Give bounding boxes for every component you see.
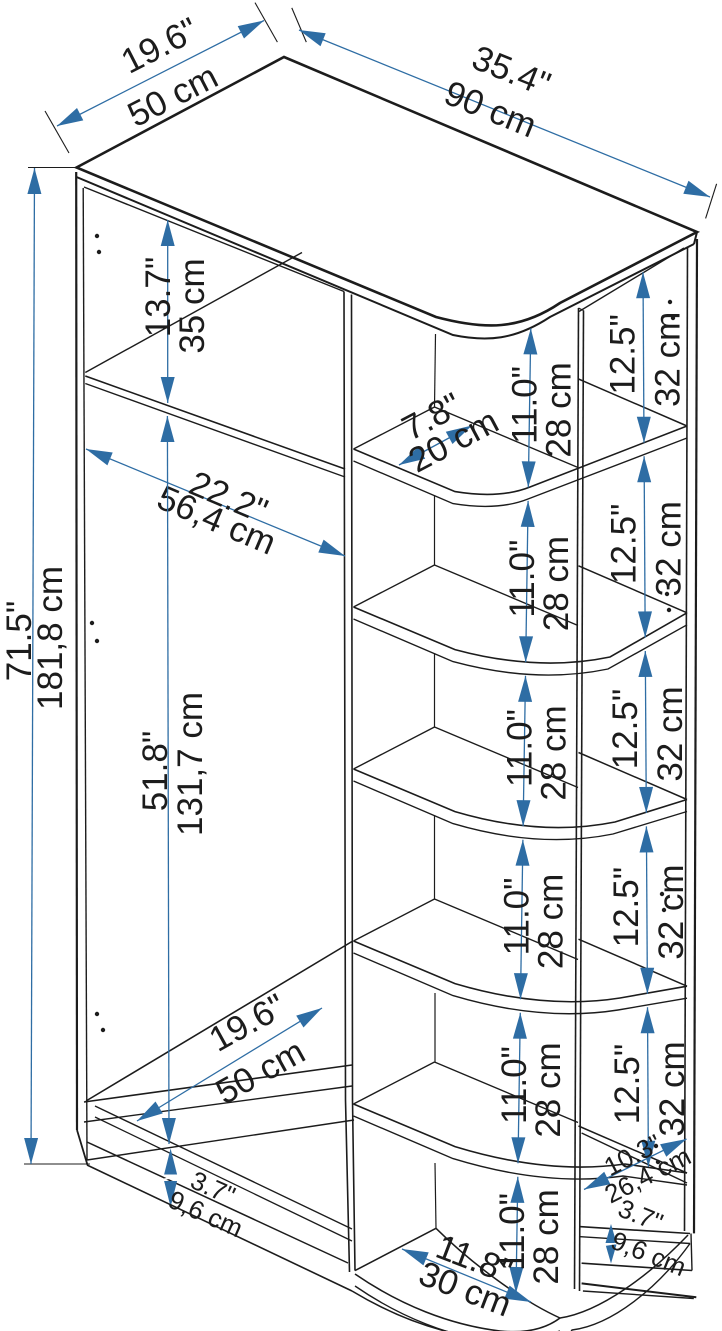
svg-text:12.5": 12.5" [605, 504, 644, 585]
svg-text:51.8": 51.8" [136, 731, 175, 812]
svg-text:32 cm: 32 cm [652, 864, 691, 959]
svg-text:32 cm: 32 cm [653, 1041, 692, 1136]
svg-text:32 cm: 32 cm [649, 312, 688, 407]
svg-text:28 cm: 28 cm [527, 1189, 566, 1284]
svg-text:28 cm: 28 cm [537, 536, 576, 631]
svg-text:35 cm: 35 cm [173, 258, 212, 353]
svg-text:12.5": 12.5" [604, 314, 643, 395]
svg-text:28 cm: 28 cm [534, 705, 573, 800]
svg-text:32 cm: 32 cm [650, 501, 689, 596]
svg-text:32 cm: 32 cm [651, 686, 690, 781]
svg-text:181,8 cm: 181,8 cm [31, 566, 70, 710]
svg-text:131,7 cm: 131,7 cm [171, 692, 210, 836]
svg-text:12.5": 12.5" [608, 1044, 647, 1125]
svg-text:12.5": 12.5" [606, 689, 645, 770]
svg-text:28 cm: 28 cm [529, 1042, 568, 1137]
svg-text:28 cm: 28 cm [532, 874, 571, 969]
svg-text:28 cm: 28 cm [540, 362, 579, 457]
svg-text:12.5": 12.5" [607, 867, 646, 948]
